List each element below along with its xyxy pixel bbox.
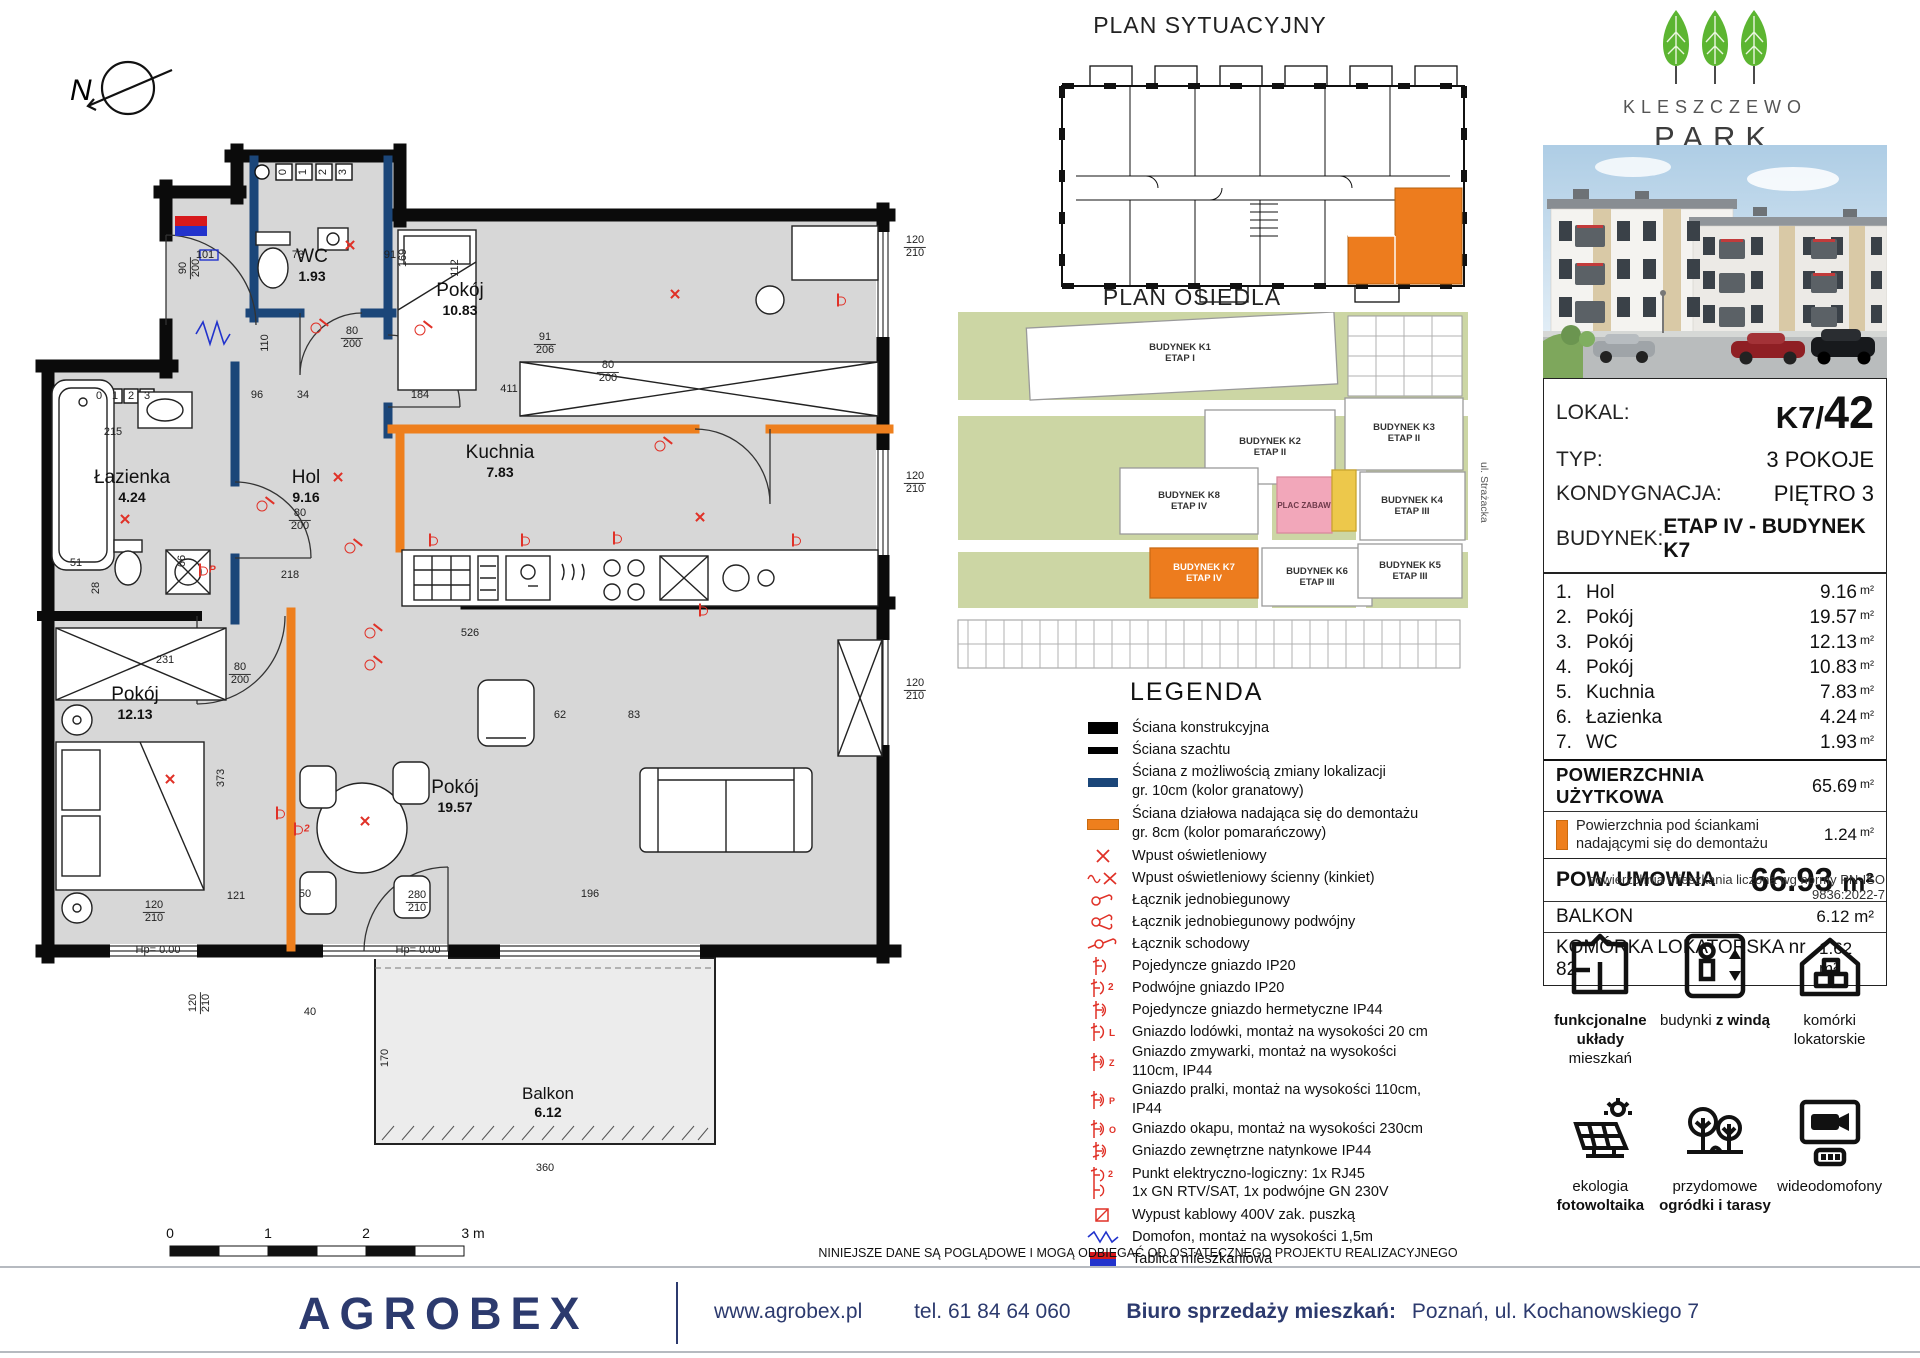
- room-label-lazienka: Łazienka 4.24: [94, 467, 170, 505]
- svg-text:BUDYNEK K1: BUDYNEK K1: [1149, 342, 1211, 353]
- feature-solar: ekologiafotowoltaika: [1543, 1094, 1658, 1216]
- socket-washer-icon: P: [1086, 1090, 1120, 1110]
- room-label-hol: Hol 9.16: [292, 467, 321, 505]
- footer-office-address: Poznań, ul. Kochanowskiego 7: [1412, 1300, 1699, 1323]
- svg-text:BUDYNEK K7: BUDYNEK K7: [1173, 562, 1235, 573]
- legend-item: Ściana z możliwością zmiany lokalizacjig…: [1086, 761, 1446, 803]
- svg-text:0: 0: [166, 1225, 174, 1241]
- wall-structural-swatch: [1086, 722, 1120, 734]
- svg-text:BUDYNEK K2: BUDYNEK K2: [1239, 436, 1301, 447]
- brand-name-line1: KLESZCZEWO: [1543, 97, 1887, 118]
- socket-outdoor-icon: [1086, 1141, 1120, 1161]
- svg-text:BUDYNEK K6: BUDYNEK K6: [1286, 566, 1348, 577]
- removable-walls-row: Powierzchnia pod ściankaminadającymi się…: [1544, 811, 1886, 858]
- typ-row: TYP: 3 POKOJE: [1544, 443, 1886, 477]
- legend-item: PGniazdo pralki, montaż na wysokości 110…: [1086, 1081, 1446, 1119]
- switch-icon: [1086, 891, 1120, 909]
- bath-toilet: [114, 540, 142, 585]
- brand-leaves-icon: [1656, 8, 1774, 86]
- wall-light-icon: [1086, 870, 1120, 886]
- wardrobe-1: [520, 362, 878, 416]
- socket-hood-icon: O: [1086, 1119, 1120, 1139]
- plan-osiedla-map: BUDYNEK K1 ETAP I BUDYNEK K2 ETAP II BUD…: [950, 312, 1522, 684]
- plan-sytuacyjny-title: PLAN SYTUACYJNY: [1093, 12, 1327, 39]
- socket-icon: [1086, 956, 1120, 976]
- armchair: [478, 680, 534, 746]
- agrobex-logo: AGROBEX: [298, 1288, 589, 1340]
- legend-item: Ściana szachtu: [1086, 739, 1446, 761]
- svg-text:2: 2: [1108, 982, 1114, 993]
- footer-office-label: Biuro sprzedaży mieszkań:: [1126, 1300, 1396, 1323]
- wall-navy-swatch: [1086, 778, 1120, 787]
- feature-icons: funkcjonalne układymieszkań budynki z wi…: [1543, 928, 1887, 1216]
- svg-text:ETAP II: ETAP II: [1388, 433, 1420, 444]
- disclaimer: NINIEJSZE DANE SĄ POGLĄDOWE I MOGĄ ODBIE…: [818, 1246, 1457, 1260]
- cable-outlet-icon: [1086, 1206, 1120, 1224]
- feature-elevator: budynki z windą: [1658, 928, 1773, 1068]
- legend-item: Pojedyncze gniazdo IP20: [1086, 955, 1446, 977]
- bed-double: [56, 742, 204, 890]
- legend-item: Pojedyncze gniazdo hermetyczne IP44: [1086, 999, 1446, 1021]
- intercom-icon: [1086, 1230, 1120, 1244]
- footer-vertical-divider: [676, 1282, 678, 1344]
- building-photo: [1543, 145, 1887, 378]
- footer-phone: tel. 61 84 64 060: [914, 1300, 1070, 1323]
- svg-text:BUDYNEK K5: BUDYNEK K5: [1379, 560, 1441, 571]
- washing-machine: [166, 550, 210, 594]
- north-arrow: [88, 62, 172, 114]
- orange-wall-swatch: [1556, 820, 1568, 850]
- wall-shaft-swatch: [1086, 747, 1120, 754]
- wc-toilet: [256, 232, 290, 288]
- usable-area-row: POWIERZCHNIA UŻYTKOWA 65.69m²: [1544, 759, 1886, 811]
- legend-item: ZGniazdo zmywarki, montaż na wysokości 1…: [1086, 1043, 1446, 1081]
- footer-divider-top: [0, 1266, 1920, 1268]
- feature-intercom: wideodomofony: [1772, 1094, 1887, 1216]
- scale-labels: 0 1 2 3 m: [166, 1225, 485, 1241]
- socket-hermetic-icon: [1086, 1000, 1120, 1020]
- sidebar: KLESZCZEWO PARK: [1543, 0, 1887, 144]
- svg-text:2: 2: [1108, 1169, 1113, 1179]
- svg-text:BUDYNEK K4: BUDYNEK K4: [1381, 495, 1443, 506]
- unit-number: K7/42: [1776, 387, 1874, 439]
- data-point-icon: 2: [1086, 1166, 1120, 1200]
- sofa: [640, 768, 812, 852]
- socket-double-icon: 2: [1086, 978, 1120, 998]
- footer-website: www.agrobex.pl: [714, 1300, 862, 1323]
- svg-text:Z: Z: [1109, 1058, 1115, 1068]
- kitchen-counter: [402, 550, 878, 606]
- room-row: 3.Pokój12.13m²: [1544, 630, 1886, 655]
- room-row: 2.Pokój19.57m²: [1544, 605, 1886, 630]
- socket-dishwasher-icon: Z: [1086, 1052, 1120, 1072]
- tv-cabinet: [838, 640, 882, 756]
- apartment-plan-sheet: N: [0, 0, 1920, 1358]
- legend-title: LEGENDA: [1130, 678, 1446, 707]
- svg-text:ETAP IV: ETAP IV: [1186, 573, 1223, 584]
- legend-item: Wypust kablowy 400V zak. puszką: [1086, 1204, 1446, 1226]
- legend-item: Gniazdo zewnętrzne natynkowe IP44: [1086, 1140, 1446, 1162]
- room-list: 1.Hol9.16m² 2.Pokój19.57m² 3.Pokój12.13m…: [1544, 574, 1886, 759]
- svg-text:ETAP III: ETAP III: [1392, 571, 1427, 582]
- feature-gardens: przydomoweogródki i tarasy: [1658, 1094, 1773, 1216]
- room-label-kuchnia: Kuchnia 7.83: [466, 442, 535, 480]
- legend-item: Łącznik jednobiegunowy: [1086, 889, 1446, 911]
- svg-text:ETAP I: ETAP I: [1165, 353, 1195, 364]
- feature-storage: komórkilokatorskie: [1772, 928, 1887, 1068]
- legend-item: 2Podwójne gniazdo IP20: [1086, 977, 1446, 999]
- street-label: ul. Strażacka: [1478, 462, 1490, 523]
- legend-item: OGniazdo okapu, montaż na wysokości 230c…: [1086, 1118, 1446, 1140]
- solar-panel-icon: [1562, 1094, 1638, 1170]
- plan-osiedla-title: PLAN OSIEDLA: [1103, 284, 1281, 311]
- feature-layouts: funkcjonalne układymieszkań: [1543, 928, 1658, 1068]
- svg-text:O: O: [1109, 1125, 1116, 1135]
- svg-text:ETAP IV: ETAP IV: [1171, 501, 1208, 512]
- bath-sink: [138, 392, 192, 428]
- room-row: 4.Pokój10.83m²: [1544, 655, 1886, 680]
- socket-fridge-icon: L: [1086, 1022, 1120, 1042]
- elevator-icon: [1677, 928, 1753, 1004]
- scale-bar: [170, 1246, 464, 1256]
- room-row: 6.Łazienka4.24m²: [1544, 705, 1886, 730]
- legend-item: Ściana działowa nadająca się do demontaż…: [1086, 803, 1446, 845]
- floorplan-icon: [1562, 928, 1638, 1004]
- room-label-pokoj-10: Pokój 10.83: [436, 280, 484, 318]
- brand-logo: KLESZCZEWO PARK: [1543, 0, 1887, 144]
- svg-text:ETAP III: ETAP III: [1299, 577, 1334, 588]
- plac-zabaw-label: PLAC ZABAW: [1277, 501, 1331, 510]
- legend-item: Wpust oświetleniowy ścienny (kinkiet): [1086, 867, 1446, 889]
- footer-contact: www.agrobex.pl tel. 61 84 64 060 Biuro s…: [714, 1300, 1699, 1324]
- light-outlet-icon: [1086, 848, 1120, 864]
- room-label-pokoj-19: Pokój 19.57: [431, 777, 479, 815]
- switch-double-icon: [1086, 912, 1120, 932]
- svg-text:ETAP III: ETAP III: [1394, 506, 1429, 517]
- kondygnacja-row: KONDYGNACJA: PIĘTRO 3: [1544, 477, 1886, 511]
- legend: LEGENDA Ściana konstrukcyjna Ściana szac…: [1086, 678, 1446, 1270]
- legend-item: Wpust oświetleniowy: [1086, 845, 1446, 867]
- budynek-row: BUDYNEK: ETAP IV - BUDYNEK K7: [1544, 511, 1886, 574]
- legend-item: Ściana konstrukcyjna: [1086, 717, 1446, 739]
- north-label: N: [70, 74, 92, 107]
- garden-trees-icon: [1677, 1094, 1753, 1170]
- norm-note: powierzchnia mieszkania liczona wg normy…: [1543, 872, 1885, 902]
- legend-item: LGniazdo lodówki, montaż na wysokości 20…: [1086, 1021, 1446, 1043]
- room-label-balkon: Balkon 6.12: [522, 1084, 574, 1120]
- legend-item: Łącznik schodowy: [1086, 933, 1446, 955]
- room-row: 1.Hol9.16m²: [1544, 580, 1886, 605]
- svg-text:L: L: [1109, 1028, 1115, 1039]
- footer-divider-bottom: [0, 1351, 1920, 1353]
- plan-sytuacyjny-drawing: [1050, 48, 1480, 306]
- svg-text:ETAP II: ETAP II: [1254, 447, 1286, 458]
- svg-text:BUDYNEK K3: BUDYNEK K3: [1373, 422, 1435, 433]
- wall-orange-swatch: [1086, 819, 1120, 830]
- video-intercom-icon: [1792, 1094, 1868, 1170]
- svg-text:2: 2: [362, 1225, 370, 1241]
- svg-text:1: 1: [264, 1225, 272, 1241]
- storage-house-icon: [1792, 928, 1868, 1004]
- lokal-row: LOKAL: K7/42: [1544, 379, 1886, 443]
- legend-item: 2Punkt elektryczno-logiczny: 1x RJ451x G…: [1086, 1162, 1446, 1204]
- legend-item: Łącznik jednobiegunowy podwójny: [1086, 911, 1446, 933]
- room-label-wc: WC 1.93: [296, 246, 328, 284]
- svg-text:P: P: [1109, 1096, 1115, 1106]
- room-row: 7.WC1.93m²: [1544, 730, 1886, 755]
- svg-text:3 m: 3 m: [461, 1225, 484, 1241]
- switch-stair-icon: [1086, 935, 1120, 953]
- room-row: 5.Kuchnia7.83m²: [1544, 680, 1886, 705]
- room-label-pokoj-12: Pokój 12.13: [111, 684, 159, 722]
- svg-text:BUDYNEK K8: BUDYNEK K8: [1158, 490, 1220, 501]
- floorplan-drawing: N: [0, 0, 960, 1270]
